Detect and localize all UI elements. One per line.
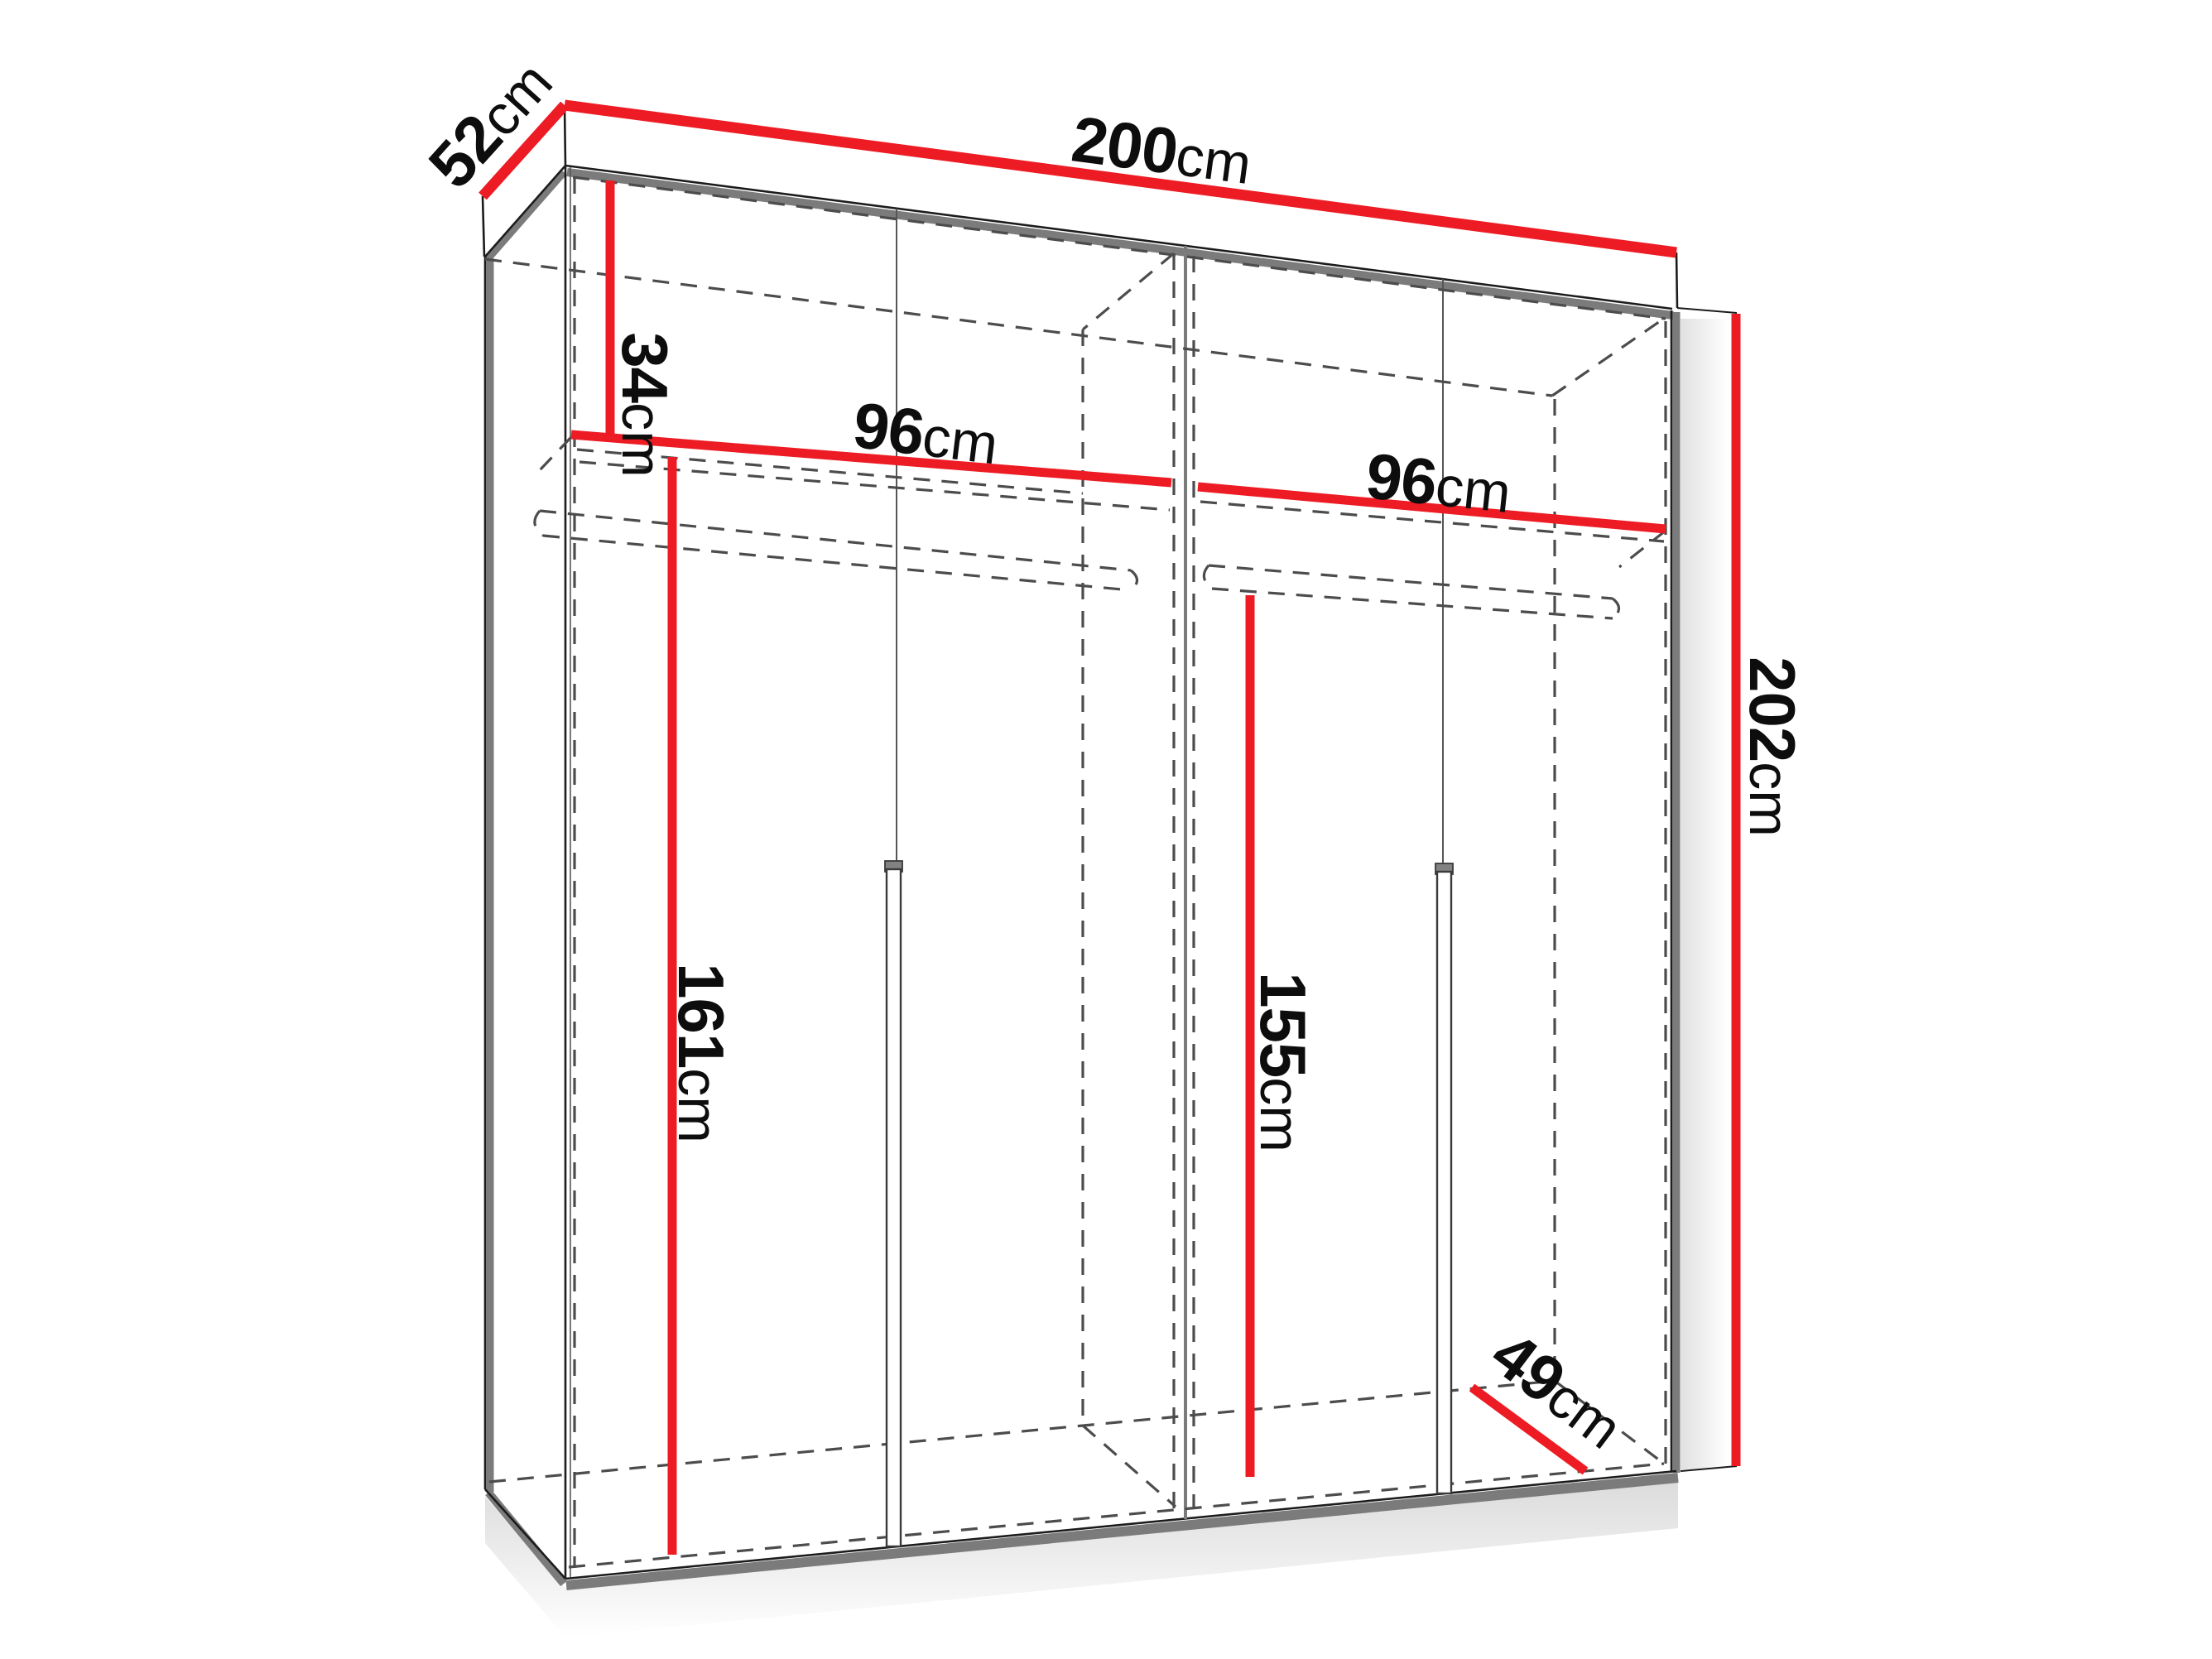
top-panel-front-left-edge [565, 105, 565, 166]
right-rod-right-cap [1613, 599, 1619, 618]
right-rod-left-cap [1204, 565, 1212, 589]
left-rod-left-cap [535, 511, 543, 536]
right-interior-height-label: 155cm [1247, 972, 1320, 1152]
door-top-edge [565, 166, 1672, 309]
height-witness-line-top [1677, 308, 1737, 313]
interior-depth-label: 49cm [1479, 1317, 1638, 1463]
partition-top-depth-edge [1083, 253, 1174, 329]
left-door-handle [887, 869, 901, 1546]
dimension-labels: 200cm 52cm 202cm 34cm 96cm 96cm 161cm 15… [415, 45, 1809, 1462]
right-shelf-depth-edge [1619, 531, 1666, 567]
door-handles [885, 861, 1453, 1546]
left-section-width-label: 96cm [849, 388, 1003, 478]
left-rod-right-cap [1131, 570, 1137, 590]
top-section-height-label: 34cm [608, 332, 681, 477]
right-side-shadow [1681, 319, 1729, 1469]
right-section-width-label: 96cm [1363, 439, 1515, 527]
diagram-canvas: 200cm 52cm 202cm 34cm 96cm 96cm 161cm 15… [0, 0, 2212, 1659]
left-rod-bottom-edge [543, 536, 1131, 590]
total-width-label: 200cm [1068, 102, 1256, 198]
door-top-edge-shade [567, 172, 1673, 315]
interior-floor-back-edge [489, 1381, 1555, 1482]
left-interior-height-label: 161cm [665, 963, 738, 1143]
wardrobe-dimension-diagram: 200cm 52cm 202cm 34cm 96cm 96cm 161cm 15… [0, 0, 2212, 1659]
top-panel-back-left-edge [483, 196, 484, 257]
top-panel-right-edge [1676, 252, 1677, 308]
total-height-label: 202cm [1736, 656, 1809, 837]
partition-bottom-depth-edge [1083, 1426, 1176, 1507]
left-rod-top-edge [540, 511, 1131, 570]
right-door-handle [1437, 872, 1451, 1493]
interior-ceiling-right-depth-edge [1552, 320, 1662, 396]
